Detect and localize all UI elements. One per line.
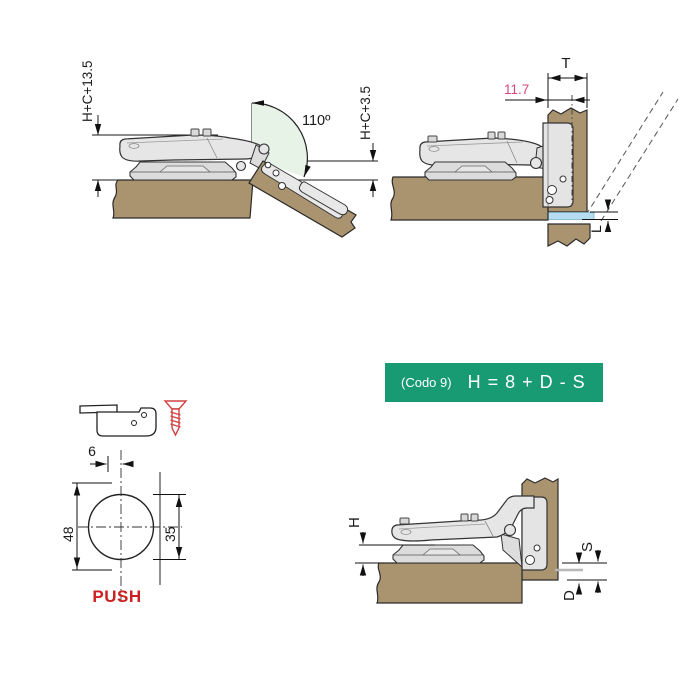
bottom-panel	[548, 224, 590, 246]
mounting-plate	[130, 162, 236, 180]
technical-drawing-sheet: H+C+13.5 H+C+3.5	[0, 0, 700, 700]
gap-s-label: S	[579, 542, 596, 552]
offset-label: 11.7	[504, 82, 529, 97]
formula-badge: (Codo 9) H = 8 + D - S	[385, 363, 603, 402]
pivot-knuckle	[237, 162, 246, 171]
height-48-label: 48	[60, 526, 76, 542]
gap-highlight	[548, 213, 594, 220]
screw-hole	[560, 176, 566, 182]
door-ghost-lines	[586, 92, 678, 221]
wood-panel	[391, 177, 548, 220]
adjust-screw-icon	[471, 514, 478, 521]
cup-diameter-label: 35	[162, 526, 178, 542]
adjust-screw-icon	[203, 129, 211, 136]
gap-label: L	[588, 225, 604, 233]
dim-hc35-label: H+C+3.5	[358, 86, 373, 140]
drilling-pattern-diagram: 6 48 35 PUSH	[40, 392, 230, 617]
pivot-knuckle	[259, 144, 269, 154]
screw-icon	[165, 401, 186, 435]
mounting-plate	[425, 162, 516, 180]
adjust-screw-icon	[400, 518, 409, 524]
adjust-screw-icon	[498, 132, 505, 139]
pivot-knuckle	[531, 158, 542, 169]
push-label: PUSH	[92, 587, 141, 606]
screw-hole	[548, 186, 557, 195]
mounted-hinge-dimensions-diagram: H S D	[335, 470, 635, 645]
screw-hole	[273, 170, 279, 176]
adjust-screw-icon	[191, 129, 199, 136]
dim-T	[548, 73, 587, 108]
dim-6	[90, 456, 133, 472]
formula-equation: H = 8 + D - S	[468, 372, 586, 393]
dim-hc135-label: H+C+13.5	[80, 60, 95, 122]
screw-hole	[534, 545, 540, 551]
open-hinge-diagram: H+C+13.5 H+C+3.5	[55, 45, 395, 265]
cup-plate	[543, 123, 573, 207]
overlay-d-label: D	[561, 590, 578, 601]
wood-panel	[377, 563, 522, 603]
pivot-knuckle	[505, 525, 516, 536]
dim-S	[562, 550, 607, 593]
mounting-plate	[393, 545, 484, 563]
screw-hole	[526, 556, 535, 565]
angle-label: 110º	[302, 113, 331, 129]
edge-distance-label: 6	[88, 443, 96, 459]
hinge-side-icon	[80, 405, 156, 436]
adjust-screw-icon	[488, 132, 495, 139]
wood-panel	[113, 180, 253, 218]
screw-hole	[546, 197, 553, 204]
adjust-screw-icon	[461, 514, 468, 521]
closed-hinge-overlay-diagram: T 11.7 L	[375, 40, 690, 270]
adjust-screw-icon	[428, 136, 437, 142]
plate-height-label: H	[346, 517, 363, 528]
formula-code: (Codo 9)	[401, 375, 452, 390]
screw-hole	[279, 183, 286, 190]
thickness-label: T	[561, 55, 570, 72]
